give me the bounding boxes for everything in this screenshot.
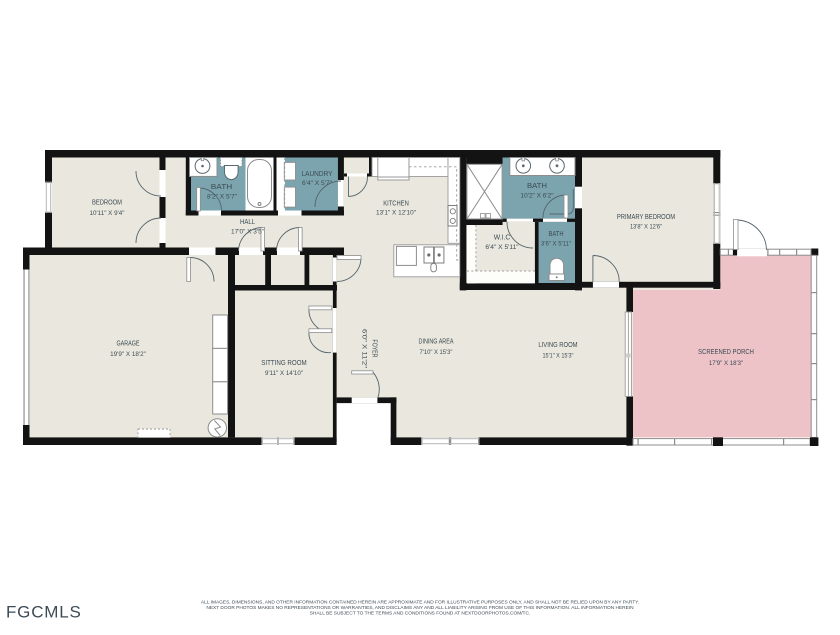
svg-text:LAUNDRY: LAUNDRY bbox=[302, 171, 333, 178]
svg-text:BATH: BATH bbox=[549, 231, 564, 238]
svg-text:17'0" X 3'5": 17'0" X 3'5" bbox=[231, 230, 264, 236]
svg-text:15'1" X 15'3": 15'1" X 15'3" bbox=[543, 354, 574, 360]
svg-text:DINING AREA: DINING AREA bbox=[419, 339, 454, 346]
svg-text:3'6" X 5'11": 3'6" X 5'11" bbox=[541, 242, 571, 248]
svg-text:PRIMARY BEDROOM: PRIMARY BEDROOM bbox=[617, 214, 675, 221]
svg-text:17'9" X 18'3": 17'9" X 18'3" bbox=[709, 361, 743, 367]
svg-text:SCREENED PORCH: SCREENED PORCH bbox=[698, 349, 754, 356]
svg-text:8'2" X 5'7": 8'2" X 5'7" bbox=[207, 195, 237, 201]
svg-text:BEDROOM: BEDROOM bbox=[92, 200, 122, 207]
svg-text:SITTING ROOM: SITTING ROOM bbox=[261, 360, 307, 367]
svg-text:7'10" X 15'3": 7'10" X 15'3" bbox=[420, 350, 453, 356]
svg-text:HALL: HALL bbox=[240, 219, 255, 226]
svg-text:9'11" X 14'10": 9'11" X 14'10" bbox=[265, 371, 303, 377]
svg-text:BATH: BATH bbox=[527, 183, 547, 190]
svg-text:13'1" X 12'10": 13'1" X 12'10" bbox=[376, 211, 416, 217]
svg-text:6'4" X 5'11": 6'4" X 5'11" bbox=[485, 245, 518, 251]
svg-text:13'8" X 12'6": 13'8" X 12'6" bbox=[630, 225, 662, 231]
svg-text:10'2" X 6'2": 10'2" X 6'2" bbox=[521, 194, 554, 200]
svg-text:6'0" X 11'2": 6'0" X 11'2" bbox=[361, 329, 367, 368]
svg-text:10'11" X 9'4": 10'11" X 9'4" bbox=[90, 211, 125, 217]
svg-text:GARAGE: GARAGE bbox=[117, 341, 140, 348]
svg-text:KITCHEN: KITCHEN bbox=[383, 200, 409, 207]
svg-text:19'9" X 18'2": 19'9" X 18'2" bbox=[110, 352, 146, 358]
svg-text:NEXT DOOR PHOTOS MAKES NO REPR: NEXT DOOR PHOTOS MAKES NO REPRESENTATION… bbox=[206, 605, 634, 611]
svg-text:ALL IMAGES, DIMENSIONS, AND OT: ALL IMAGES, DIMENSIONS, AND OTHER INFORM… bbox=[201, 600, 639, 606]
svg-text:LIVING ROOM: LIVING ROOM bbox=[538, 342, 577, 349]
svg-text:W.I.C: W.I.C bbox=[494, 235, 511, 242]
svg-text:FGCMLS: FGCMLS bbox=[6, 603, 82, 622]
svg-text:FOYER: FOYER bbox=[371, 340, 378, 358]
svg-text:6'4" X 5'7": 6'4" X 5'7" bbox=[302, 181, 332, 187]
svg-text:SHALL BE SUBJECT TO THE TERMS: SHALL BE SUBJECT TO THE TERMS AND CONDIT… bbox=[310, 611, 531, 617]
svg-text:BATH: BATH bbox=[211, 184, 233, 191]
